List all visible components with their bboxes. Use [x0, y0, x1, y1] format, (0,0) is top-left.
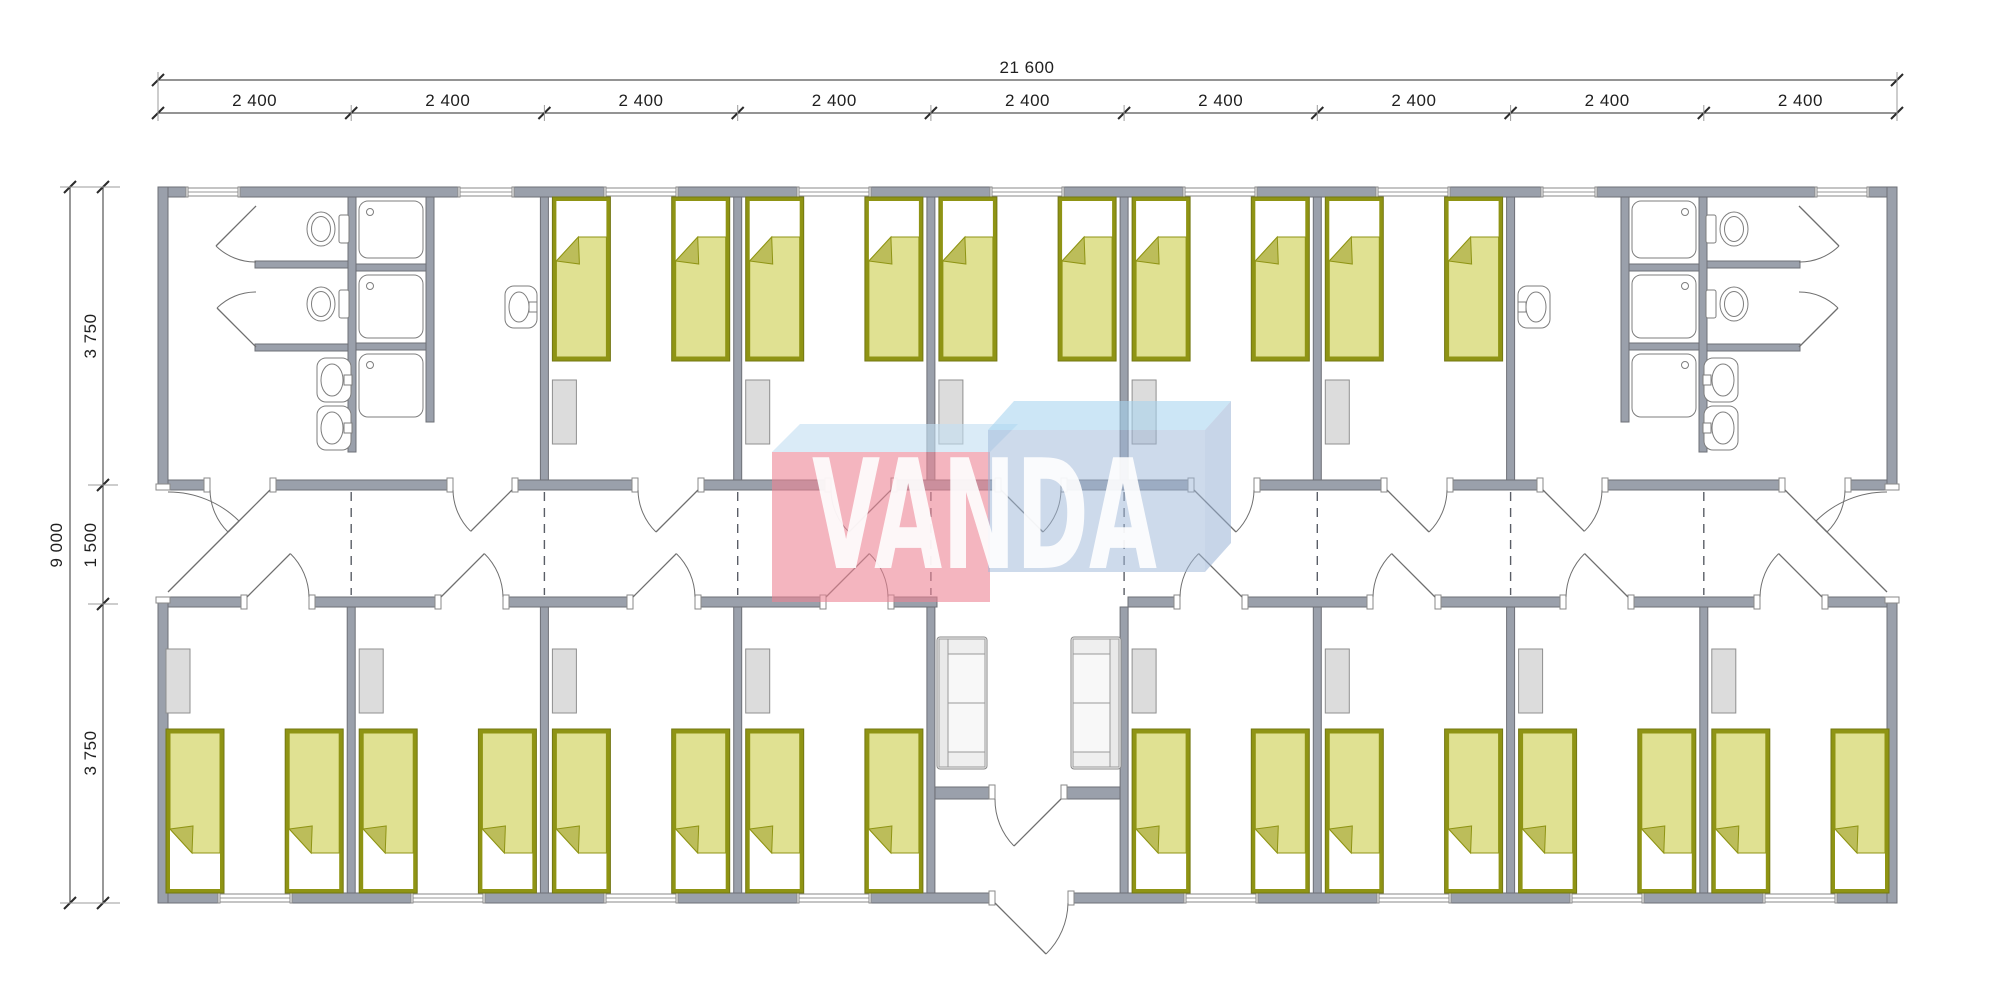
bed	[166, 729, 224, 893]
window	[218, 893, 292, 903]
window	[1376, 187, 1450, 197]
dim-module-width: 2 400	[1778, 91, 1823, 110]
wall	[356, 343, 426, 350]
dim-module-width: 2 400	[1198, 91, 1243, 110]
bed	[1132, 729, 1190, 893]
dim-room-depth-top: 3 750	[81, 313, 100, 358]
toilet-tank	[1706, 215, 1716, 243]
bed	[865, 729, 923, 893]
wall	[1313, 197, 1321, 480]
wall	[1242, 597, 1373, 607]
wardrobe	[166, 649, 190, 713]
dim-module-width: 2 400	[1391, 91, 1436, 110]
wardrobe	[1325, 380, 1349, 444]
wall	[1062, 187, 1185, 197]
bed	[552, 729, 610, 893]
sofa	[937, 637, 987, 769]
wall	[356, 264, 426, 271]
wall	[1629, 343, 1699, 350]
wall	[1507, 607, 1515, 893]
shower-drain-icon	[367, 362, 374, 369]
wardrobe	[359, 649, 383, 713]
wall	[1068, 893, 1186, 903]
wall	[1822, 597, 1887, 607]
window	[411, 893, 485, 903]
wall	[1435, 597, 1566, 607]
wall	[290, 893, 413, 903]
wall	[1313, 607, 1321, 893]
wall	[1628, 597, 1760, 607]
bed	[1445, 729, 1503, 893]
window	[1570, 893, 1644, 903]
toilet-tank	[339, 215, 349, 243]
wall	[1602, 480, 1785, 490]
watermark-blue-box-top-face	[988, 401, 1231, 430]
faucet-icon	[1703, 375, 1711, 385]
toilet-tank	[1706, 290, 1716, 318]
window	[797, 893, 871, 903]
window	[1541, 187, 1597, 197]
faucet-icon	[529, 302, 537, 312]
faucet-icon	[344, 375, 352, 385]
bed	[746, 729, 804, 893]
watermark-blue-box-side-face	[1205, 401, 1231, 572]
faucet-icon	[344, 423, 352, 433]
bed	[1058, 197, 1116, 361]
wall	[1507, 197, 1515, 480]
dim-room-depth-bottom: 3 750	[81, 730, 100, 775]
wall	[1700, 607, 1708, 893]
window	[1377, 893, 1451, 903]
dim-module-width: 2 400	[425, 91, 470, 110]
wall	[676, 187, 799, 197]
wall	[1887, 187, 1897, 490]
shower-drain-icon	[367, 209, 374, 216]
dim-overall-width: 21 600	[1000, 58, 1055, 77]
wall	[1707, 261, 1800, 268]
wall	[483, 893, 606, 903]
bed	[1831, 729, 1889, 893]
window	[797, 187, 871, 197]
wardrobe	[1712, 649, 1736, 713]
wall	[168, 597, 247, 607]
wall	[869, 893, 995, 903]
window	[1815, 187, 1869, 197]
window	[1183, 187, 1257, 197]
window	[604, 187, 678, 197]
bed	[1519, 729, 1577, 893]
sofa	[1071, 637, 1121, 769]
wall	[869, 187, 992, 197]
bed	[1325, 197, 1383, 361]
faucet-icon	[1703, 423, 1711, 433]
bed	[478, 729, 536, 893]
bed	[1132, 197, 1190, 361]
watermark-brand-text: VANDA	[812, 427, 1157, 604]
dim-corridor-width: 1 500	[81, 522, 100, 567]
dim-module-width: 2 400	[812, 91, 857, 110]
wall	[512, 187, 606, 197]
bed	[865, 197, 923, 361]
shower-drain-icon	[367, 283, 374, 290]
dim-module-width: 2 400	[232, 91, 277, 110]
bed	[1325, 729, 1383, 893]
wardrobe	[1132, 649, 1156, 713]
bed	[746, 197, 804, 361]
toilet-tank	[339, 290, 349, 318]
wall	[540, 607, 548, 893]
bed	[1712, 729, 1770, 893]
wall	[1707, 344, 1800, 351]
bed	[359, 729, 417, 893]
dim-overall-depth: 9 000	[47, 522, 66, 567]
wall	[1254, 480, 1387, 490]
wall	[503, 597, 633, 607]
wall	[512, 480, 638, 490]
wall	[1256, 893, 1379, 903]
wall	[270, 480, 453, 490]
window	[990, 187, 1064, 197]
wall	[238, 187, 460, 197]
sanitary-block-right	[1518, 197, 1839, 452]
bed	[1251, 729, 1309, 893]
window	[186, 187, 240, 197]
wall	[734, 197, 742, 480]
bed	[672, 197, 730, 361]
wardrobe	[552, 380, 576, 444]
bed	[1251, 197, 1309, 361]
wall	[1595, 187, 1817, 197]
wall	[309, 597, 441, 607]
wall	[1621, 197, 1629, 422]
shower-drain-icon	[1682, 283, 1689, 290]
shower-drain-icon	[1682, 209, 1689, 216]
dim-module-width: 2 400	[618, 91, 663, 110]
faucet-icon	[1518, 302, 1526, 312]
wall	[1061, 787, 1120, 799]
wardrobe	[746, 380, 770, 444]
window	[1763, 893, 1837, 903]
wall	[347, 607, 355, 893]
wall	[540, 197, 548, 480]
bed	[672, 729, 730, 893]
dim-module-width: 2 400	[1585, 91, 1630, 110]
wall	[734, 607, 742, 893]
window	[458, 187, 514, 197]
wall	[1449, 893, 1572, 903]
wardrobe	[552, 649, 576, 713]
vanda-watermark: VANDA	[772, 401, 1231, 604]
wardrobe	[1325, 649, 1349, 713]
wardrobe	[746, 649, 770, 713]
wardrobe	[1519, 649, 1543, 713]
sanitary-block-left	[216, 197, 537, 452]
wall	[255, 261, 348, 268]
wall	[1255, 187, 1378, 197]
bed	[1445, 197, 1503, 361]
bed	[552, 197, 610, 361]
wall	[935, 787, 995, 799]
bed	[1638, 729, 1696, 893]
wall	[426, 197, 434, 422]
dim-module-width: 2 400	[1005, 91, 1050, 110]
wall	[255, 344, 348, 351]
wall	[1448, 187, 1543, 197]
wall	[158, 187, 168, 490]
bed	[939, 197, 997, 361]
window	[604, 893, 678, 903]
bed	[285, 729, 343, 893]
wall	[1642, 893, 1765, 903]
floor-plan-sheet: 21 600 9 000 3 750 1 500 3 750 2 4002 40…	[0, 0, 2000, 999]
wall	[676, 893, 799, 903]
wall	[1629, 264, 1699, 271]
window	[1184, 893, 1258, 903]
wall	[927, 607, 935, 893]
shower-drain-icon	[1682, 362, 1689, 369]
wall	[1447, 480, 1543, 490]
